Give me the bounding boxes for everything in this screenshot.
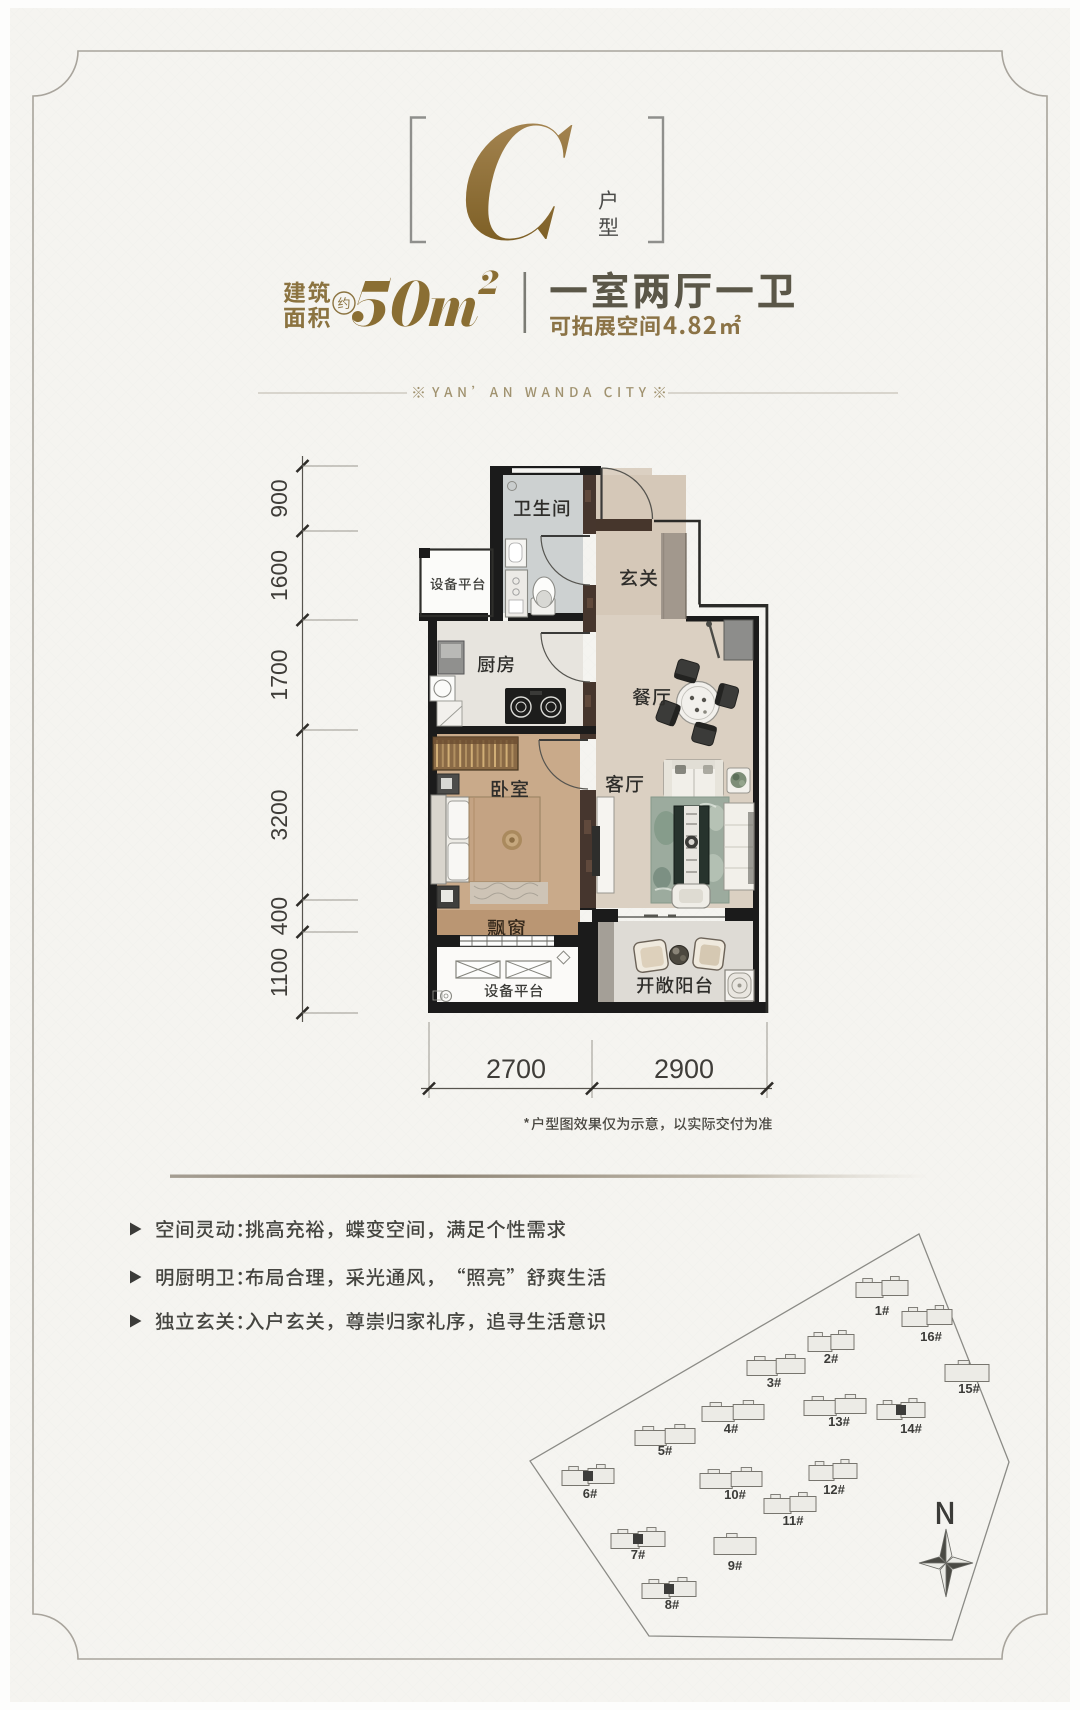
svg-text:3200: 3200: [266, 789, 292, 840]
svg-text:900: 900: [266, 479, 292, 517]
svg-text:2900: 2900: [654, 1054, 714, 1084]
svg-text:13#: 13#: [828, 1414, 850, 1429]
svg-text:3#: 3#: [767, 1375, 782, 1390]
svg-text:12#: 12#: [823, 1482, 845, 1497]
svg-text:8#: 8#: [665, 1597, 680, 1612]
svg-text:400: 400: [266, 897, 292, 935]
svg-text:9#: 9#: [728, 1558, 743, 1573]
svg-text:1100: 1100: [266, 948, 292, 997]
svg-text:6#: 6#: [583, 1486, 598, 1501]
svg-text:15#: 15#: [958, 1381, 980, 1396]
svg-text:2700: 2700: [486, 1054, 546, 1084]
svg-text:1600: 1600: [266, 550, 292, 601]
svg-text:1700: 1700: [266, 649, 292, 700]
svg-text:4#: 4#: [724, 1421, 739, 1436]
svg-text:1#: 1#: [875, 1303, 890, 1318]
svg-text:7#: 7#: [631, 1547, 646, 1562]
svg-text:16#: 16#: [920, 1329, 942, 1344]
svg-text:2#: 2#: [824, 1351, 839, 1366]
svg-text:11#: 11#: [783, 1513, 805, 1528]
svg-text:5#: 5#: [658, 1443, 673, 1458]
svg-text:14#: 14#: [900, 1421, 922, 1436]
svg-text:10#: 10#: [724, 1487, 746, 1502]
